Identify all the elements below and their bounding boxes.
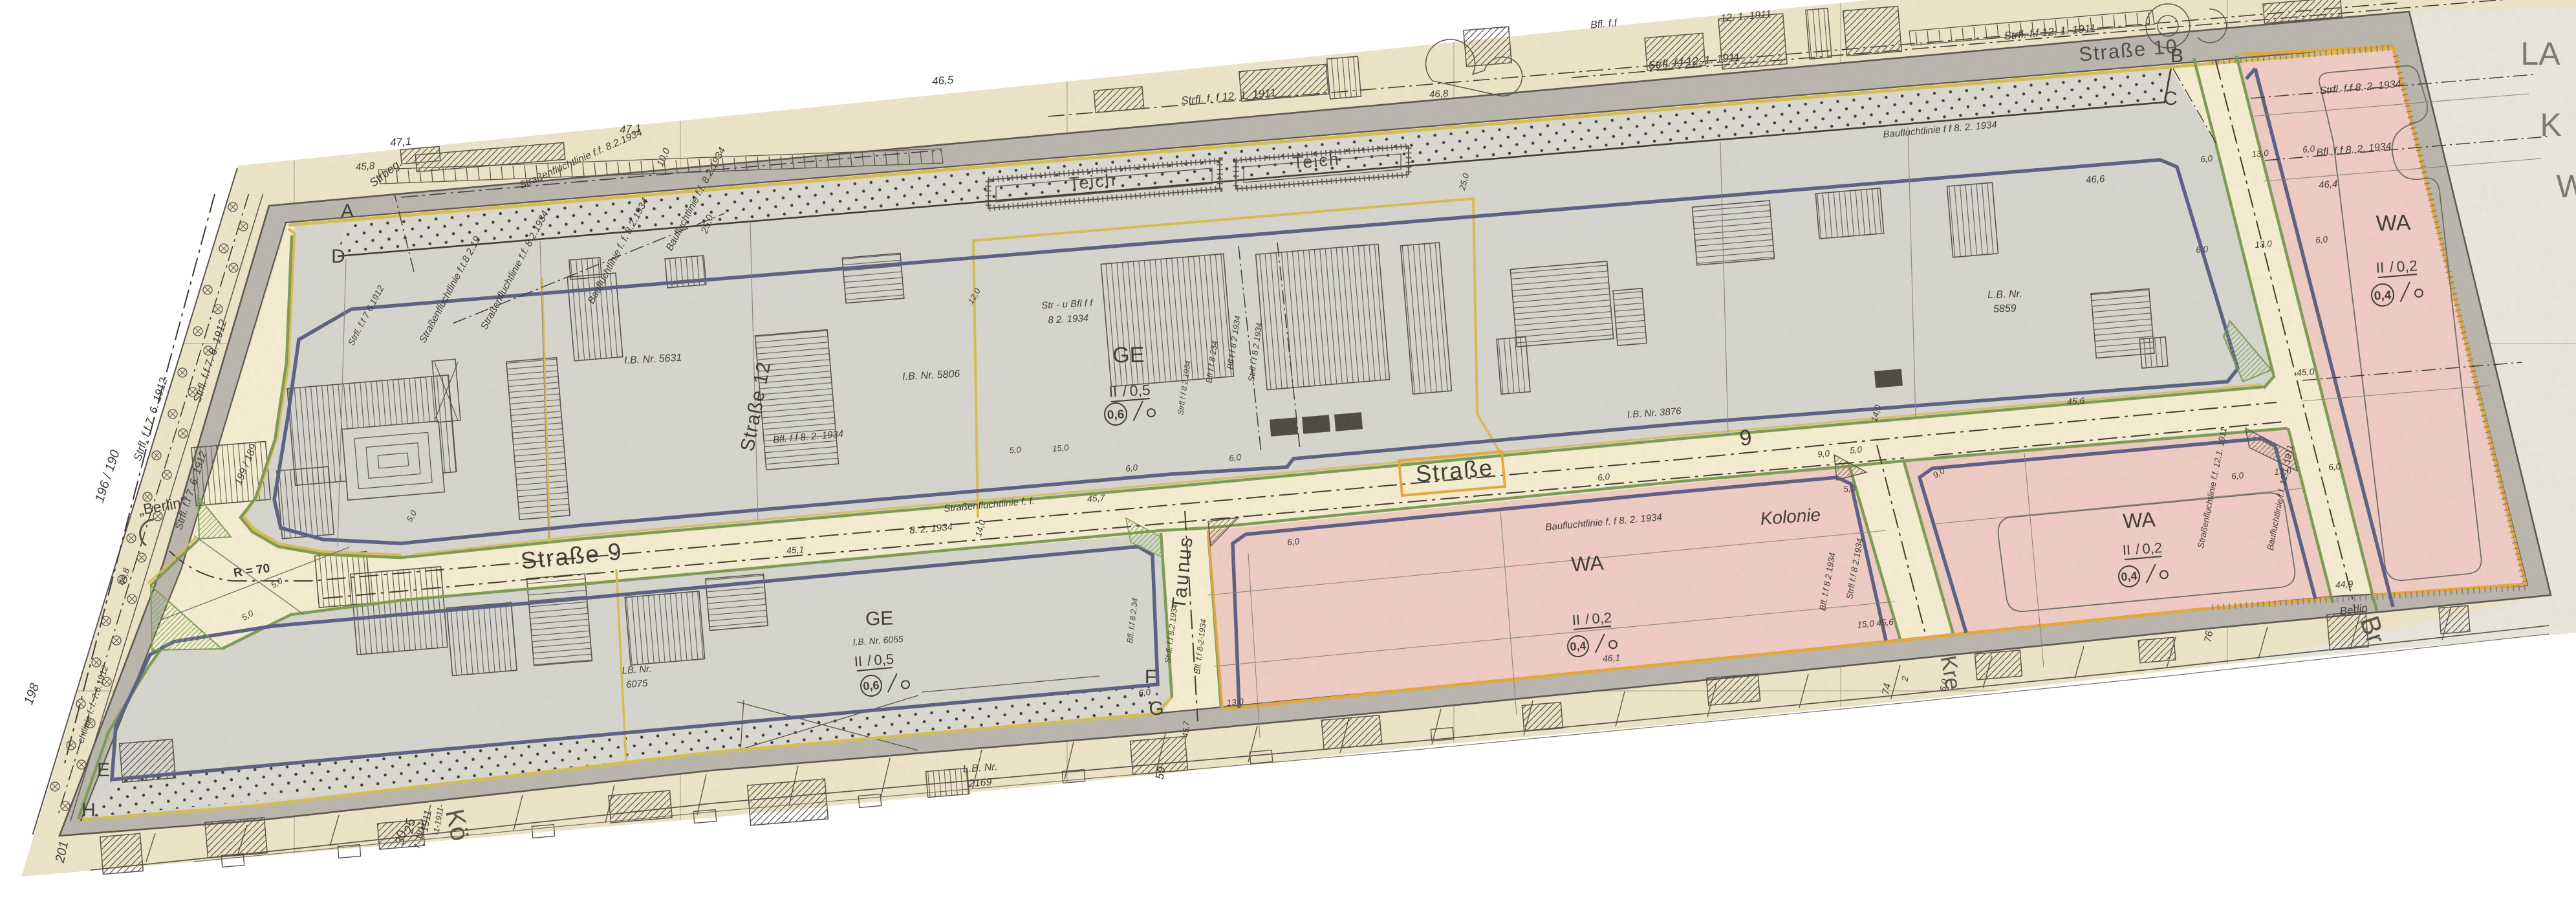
svg-text:46,5: 46,5: [931, 74, 954, 87]
svg-text:47,1: 47,1: [389, 135, 411, 149]
